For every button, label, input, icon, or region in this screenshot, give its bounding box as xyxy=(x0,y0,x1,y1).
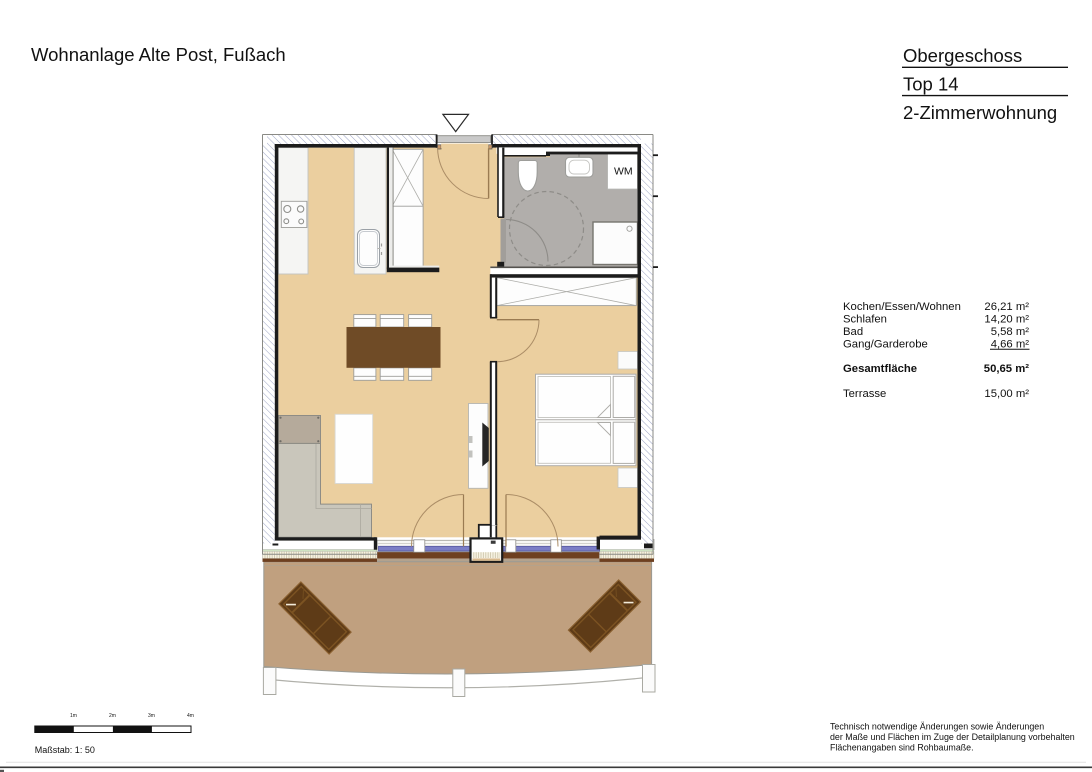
svg-text:4m: 4m xyxy=(187,713,194,719)
svg-text:15,00 m²: 15,00 m² xyxy=(984,388,1029,400)
svg-text:Gesamtfläche: Gesamtfläche xyxy=(843,363,917,375)
svg-text:Bad: Bad xyxy=(843,326,863,338)
svg-text:Gang/Garderobe: Gang/Garderobe xyxy=(843,339,928,351)
svg-text:Maßstab: 1: 50: Maßstab: 1: 50 xyxy=(35,745,95,755)
svg-text:Technisch notwendige Änderunge: Technisch notwendige Änderungen sowie Än… xyxy=(830,722,1044,732)
svg-text:Obergeschoss: Obergeschoss xyxy=(903,45,1022,66)
svg-text:26,21 m²: 26,21 m² xyxy=(984,301,1029,313)
svg-text:14,20 m²: 14,20 m² xyxy=(984,314,1029,326)
svg-text:Schlafen: Schlafen xyxy=(843,314,887,326)
svg-text:3m: 3m xyxy=(148,713,155,719)
svg-text:5,58 m²: 5,58 m² xyxy=(991,326,1030,338)
svg-text:der Maße und Flächen im Zuge d: der Maße und Flächen im Zuge der Detailp… xyxy=(830,732,1075,742)
svg-text:Terrasse: Terrasse xyxy=(843,388,886,400)
svg-text:1m: 1m xyxy=(70,713,77,719)
svg-text:50,65 m²: 50,65 m² xyxy=(984,363,1029,375)
svg-text:Wohnanlage Alte Post, Fußach: Wohnanlage Alte Post, Fußach xyxy=(31,44,286,65)
svg-text:Flächenangaben sind Rohbaumaße: Flächenangaben sind Rohbaumaße. xyxy=(830,743,974,753)
svg-text:2-Zimmerwohnung: 2-Zimmerwohnung xyxy=(903,102,1057,123)
svg-text:2m: 2m xyxy=(109,713,116,719)
svg-text:WM: WM xyxy=(614,166,633,178)
svg-text:Kochen/Essen/Wohnen: Kochen/Essen/Wohnen xyxy=(843,301,961,313)
svg-text:Top 14: Top 14 xyxy=(903,74,959,95)
